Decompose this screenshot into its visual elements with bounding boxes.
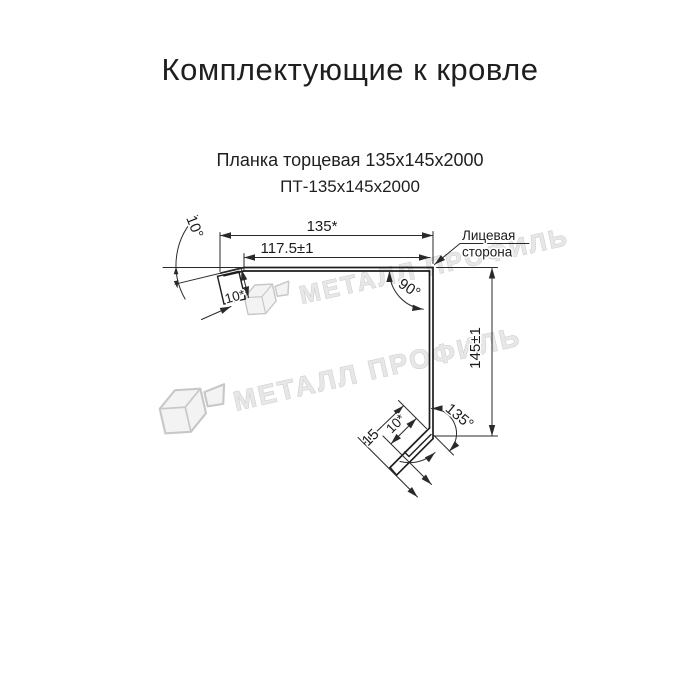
angle-top-left: 10°: [163, 213, 244, 299]
extension-line: [383, 436, 432, 485]
extension-line: [202, 307, 232, 320]
reference-line: [175, 268, 244, 285]
face-side-label-line1: Лицевая: [462, 228, 515, 243]
angle-label-bottom: 135°: [442, 400, 477, 433]
technical-drawing: МЕТАЛЛ ПРОФИЛЬ МЕТАЛЛ ПРОФИЛЬ: [0, 0, 700, 700]
reference-line: [433, 435, 454, 456]
face-side-label-line2: сторона: [462, 245, 513, 260]
page: Комплектующие к кровле Планка торцевая 1…: [0, 0, 700, 700]
dim-label-height: 145±1: [467, 327, 484, 369]
metall-profil-logo-icon: [156, 379, 232, 437]
dim-left-hem: 10*: [202, 270, 249, 320]
watermark-top: МЕТАЛЛ ПРОФИЛЬ: [242, 216, 571, 321]
dim-label-bottom-hem: 10*: [383, 411, 408, 436]
angle-label-top-left: 10°: [182, 213, 206, 240]
arc-arrow: [174, 280, 179, 288]
bottom-flange-inner-line: [397, 439, 434, 476]
angle-bottom: 135°: [432, 400, 477, 455]
bottom-flange-tip-cap: [390, 468, 397, 476]
dim-bottom-flange: 10* 15: [358, 401, 432, 498]
dim-label-flat-width: 117.5±1: [261, 240, 314, 257]
dim-label-total-width: 135*: [307, 218, 338, 235]
metall-profil-logo-icon: [242, 278, 294, 318]
